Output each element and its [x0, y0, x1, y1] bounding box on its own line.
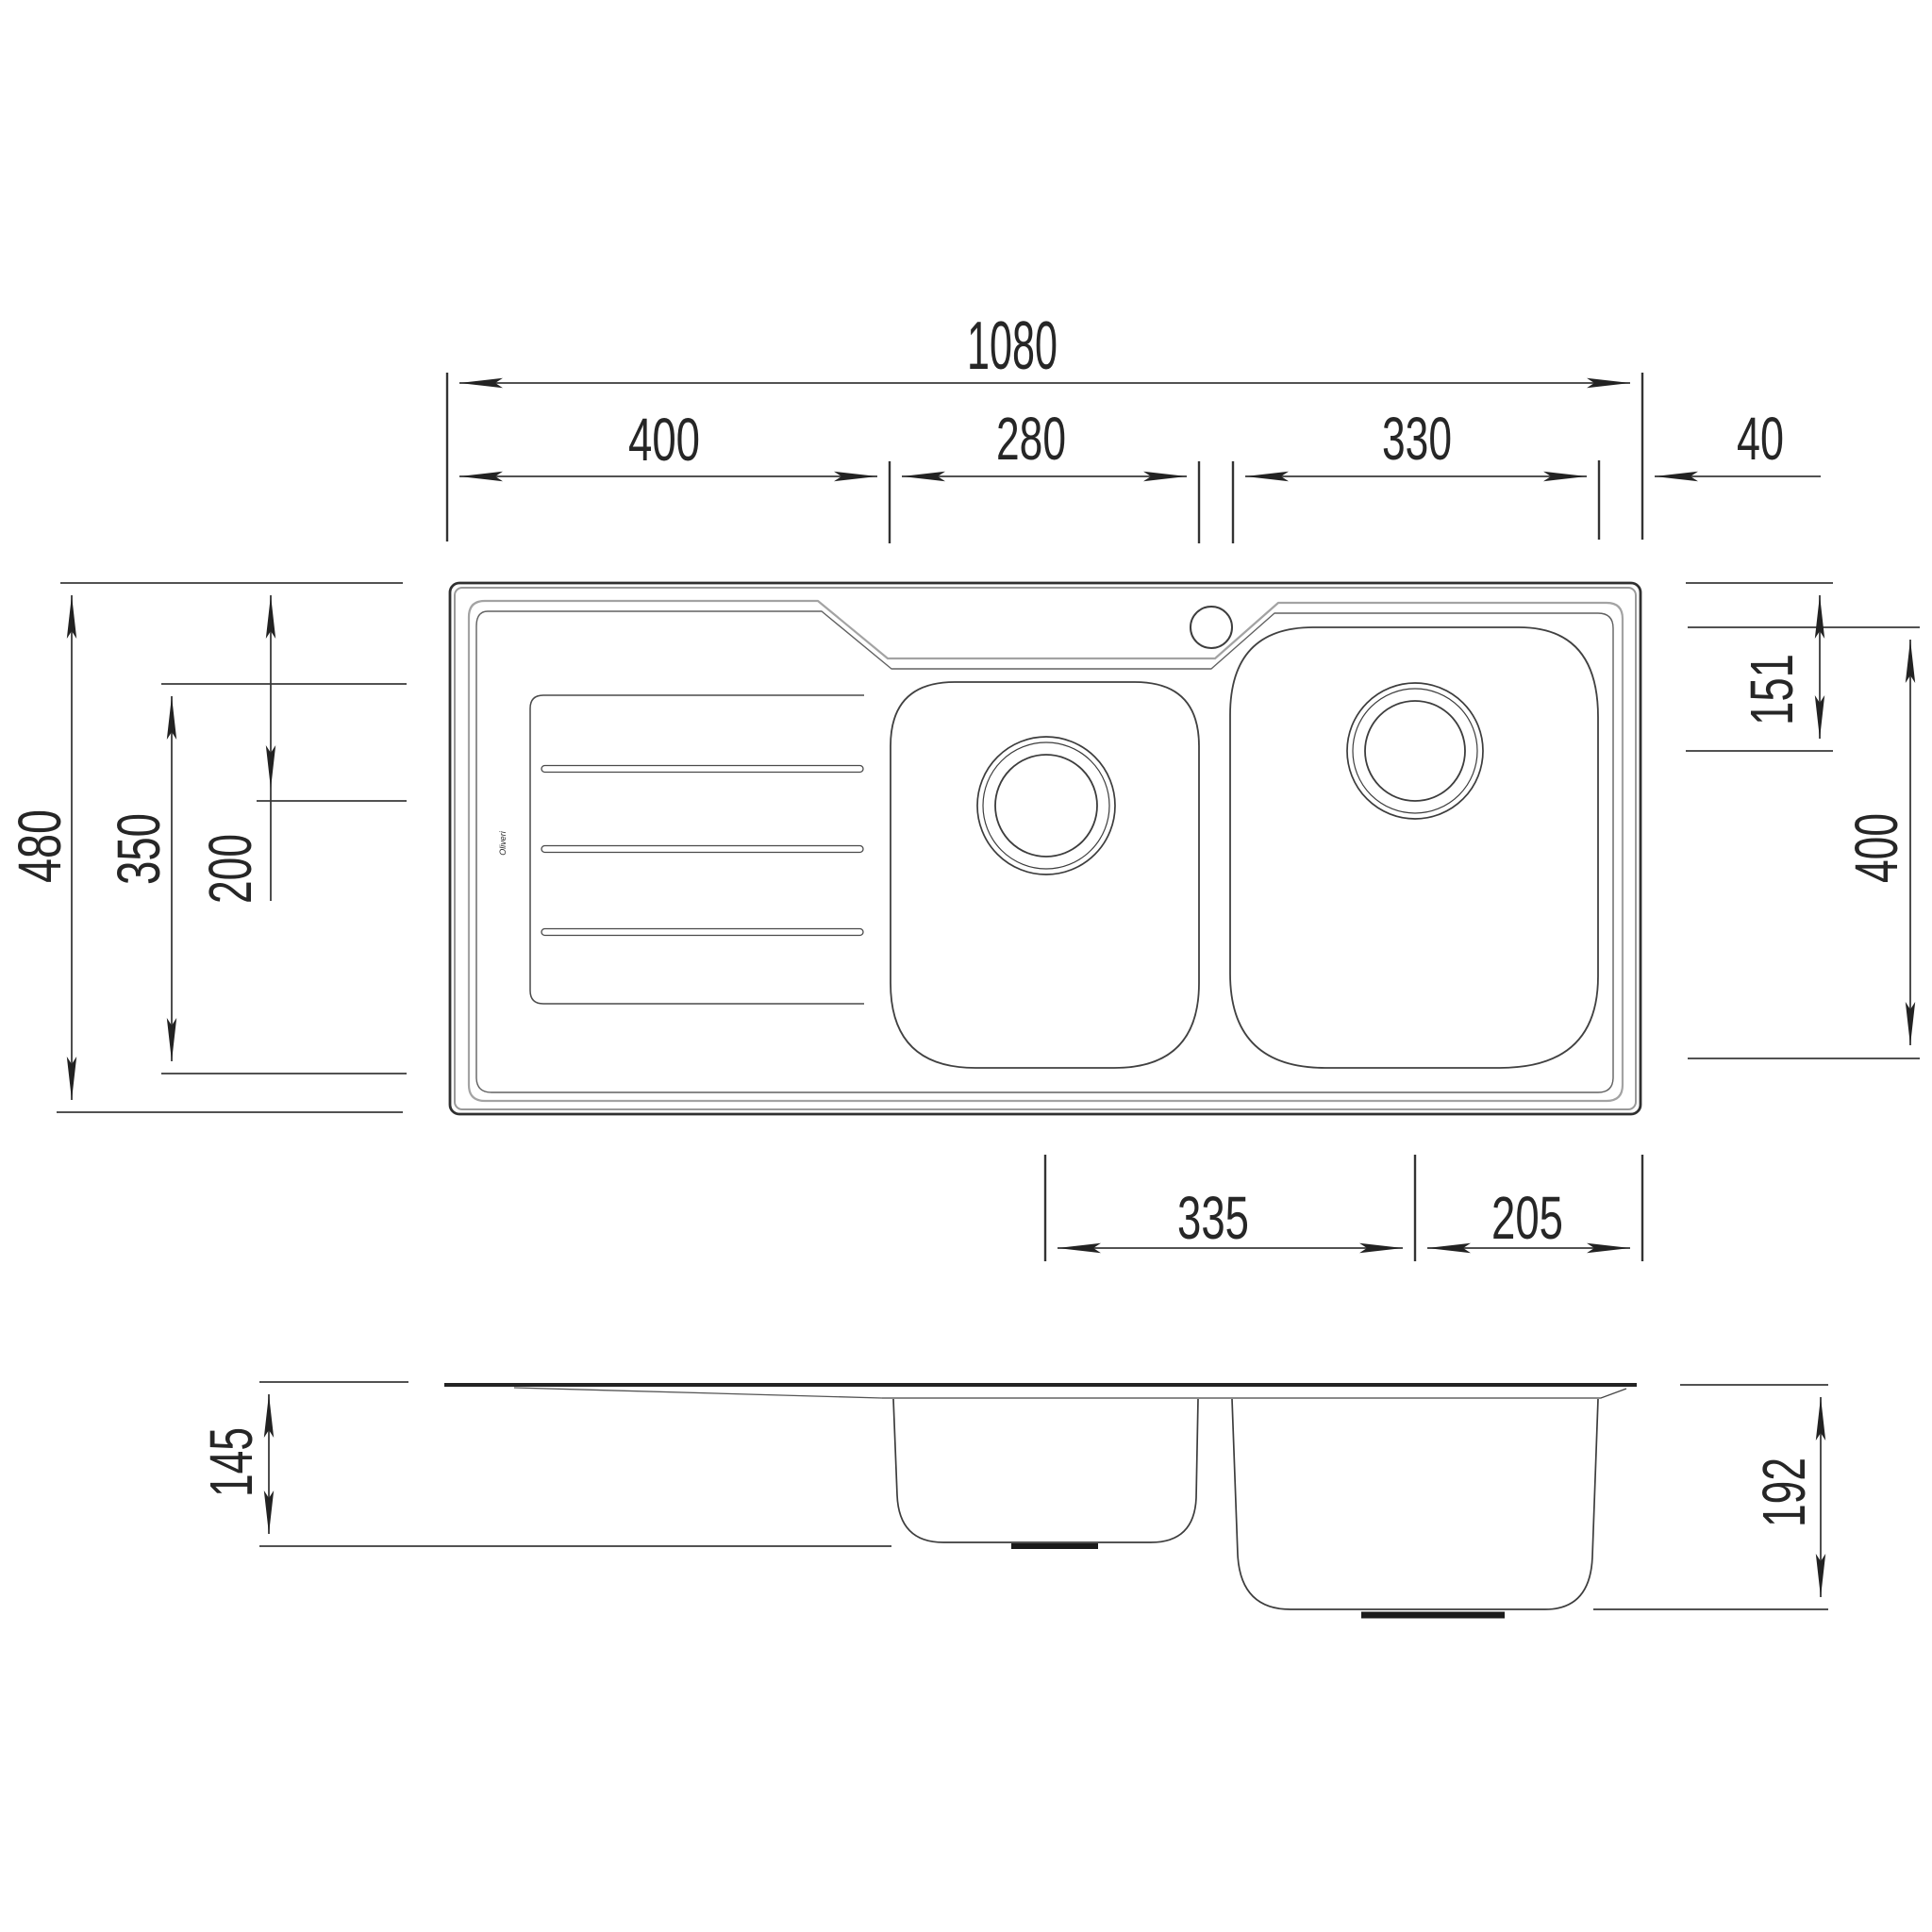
svg-text:151: 151: [1738, 654, 1806, 725]
svg-text:192: 192: [1750, 1457, 1818, 1527]
svg-text:280: 280: [996, 405, 1066, 473]
svg-text:200: 200: [196, 834, 264, 904]
svg-text:400: 400: [628, 406, 700, 474]
svg-text:205: 205: [1491, 1184, 1563, 1252]
svg-text:145: 145: [197, 1427, 265, 1497]
svg-text:40: 40: [1737, 405, 1784, 473]
svg-text:Oliveri: Oliveri: [498, 830, 508, 856]
svg-text:480: 480: [6, 809, 74, 883]
svg-text:400: 400: [1842, 813, 1910, 883]
svg-text:1080: 1080: [967, 308, 1058, 384]
svg-text:335: 335: [1177, 1184, 1249, 1252]
svg-text:350: 350: [105, 813, 173, 885]
svg-text:330: 330: [1382, 405, 1452, 473]
